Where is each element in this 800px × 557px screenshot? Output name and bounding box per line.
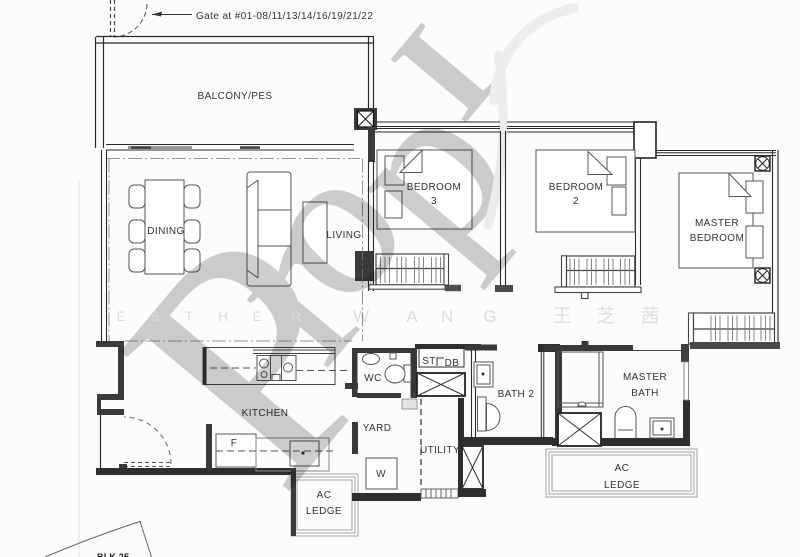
svg-text:BEDROOM: BEDROOM [690, 233, 744, 244]
svg-text:AC: AC [615, 463, 630, 474]
svg-text:Gate at #01-08/11/13/14/16/19/: Gate at #01-08/11/13/14/16/19/21/22 [196, 11, 373, 22]
svg-text:BLK 25: BLK 25 [97, 552, 129, 557]
svg-text:ST: ST [422, 356, 436, 367]
svg-text:G: G [483, 307, 496, 326]
svg-text:DB: DB [445, 358, 460, 369]
svg-text:BATH 2: BATH 2 [498, 389, 535, 400]
svg-text:N: N [441, 307, 453, 326]
svg-text:A: A [406, 307, 418, 326]
svg-text:LEDGE: LEDGE [604, 480, 640, 491]
svg-text:T: T [185, 308, 194, 324]
svg-text:UTILITY: UTILITY [420, 445, 460, 456]
svg-text:W: W [353, 307, 369, 326]
svg-text:S: S [150, 308, 159, 324]
svg-text:芝: 芝 [596, 305, 615, 327]
svg-text:R: R [291, 308, 301, 324]
svg-text:BEDROOM: BEDROOM [549, 182, 603, 193]
svg-text:王: 王 [552, 306, 571, 327]
svg-text:E: E [252, 308, 261, 324]
svg-text:H: H [218, 308, 228, 324]
svg-text:BATH: BATH [631, 388, 659, 399]
svg-text:MASTER: MASTER [623, 372, 667, 383]
svg-text:E: E [116, 308, 125, 324]
svg-text:2: 2 [573, 196, 579, 207]
svg-text:BALCONY/PES: BALCONY/PES [198, 91, 273, 102]
svg-text:茜: 茜 [640, 305, 659, 327]
svg-text:MASTER: MASTER [695, 218, 739, 229]
